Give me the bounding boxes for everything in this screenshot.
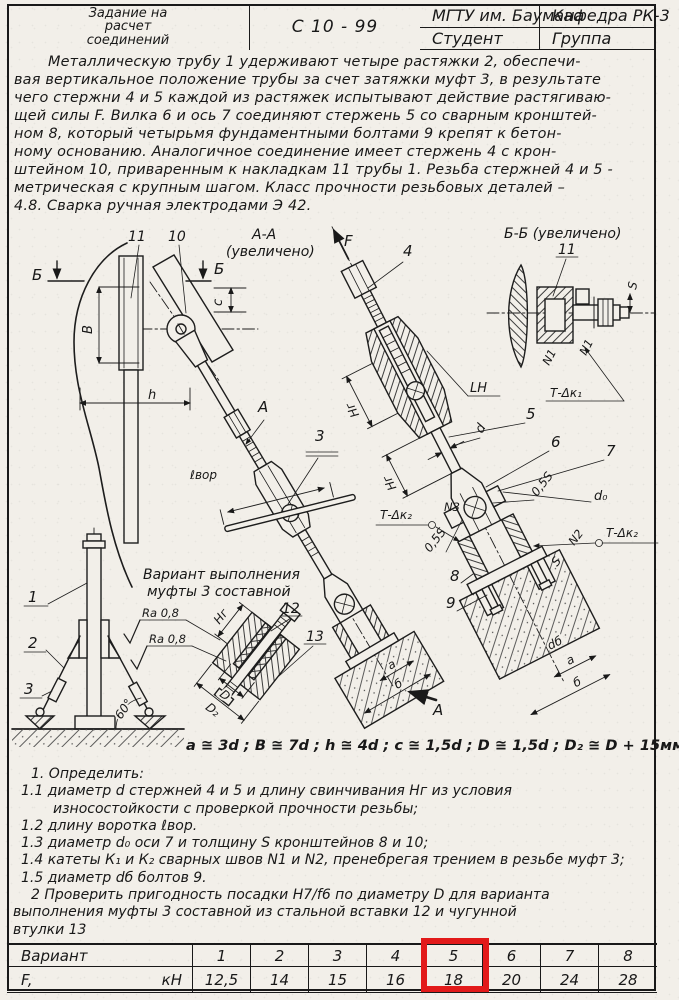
dim-label-05s-b: 0,5S (421, 525, 449, 555)
task-line: износостойкости с проверкой прочности ре… (13, 801, 655, 818)
part-label-3-coupling: 3 (315, 427, 325, 445)
dim-label-lvor: ℓвор (189, 468, 217, 482)
aa-title-line1: А-А (251, 227, 276, 243)
dept-name: Кафедра РК-3 (540, 4, 656, 28)
task-line: 1.3 диаметр d₀ оси 7 и толщину S кронште… (13, 835, 655, 852)
dim-label-d0: d₀ (594, 489, 608, 504)
title-block: МГТУ им. Баумана Кафедра РК-3 Задание на… (7, 4, 656, 50)
description-line: ному основанию. Аналогичное соединение и… (14, 143, 648, 161)
dim-label-Hg2: Нг (380, 472, 400, 493)
task-line: 1.4 катеты К₁ и К₂ сварных швов N1 и N2,… (13, 852, 655, 869)
variant-number: 8 (599, 945, 657, 967)
variant-number: 3 (309, 945, 367, 967)
variants-table: Вариант 1 2 3 4 5 6 7 8 F, кН 12,5 14 15… (7, 943, 657, 991)
task-list: 1. Определить: 1.1 диаметр d стержней 4 … (13, 766, 655, 939)
group-label: Группа (540, 28, 656, 50)
variant-note-line2: муфты 3 составной (147, 584, 291, 600)
part-label-8: 8 (450, 567, 460, 585)
dim-label-D2: D₂ (203, 700, 223, 720)
variant-number: 1 (193, 945, 251, 967)
weld-flag-tk1: Т-Δк₁ (550, 386, 582, 400)
roughness-label-bottom: Ra 0,8 (149, 632, 186, 646)
force-value: 24 (541, 967, 599, 993)
description-line: Металлическую трубу 1 удерживают четыре … (14, 53, 648, 71)
part-label-4: 4 (403, 242, 413, 260)
part-label-2: 2 (28, 634, 38, 652)
dim-label-d: d (472, 421, 489, 436)
sheet-code: С 10 - 99 (250, 4, 420, 50)
variant-note-line1: Вариант выполнения (143, 567, 300, 583)
description-line: вая вертикальное положение трубы за счет… (14, 71, 648, 89)
force-value: 15 (309, 967, 367, 993)
part-label-7: 7 (606, 442, 616, 460)
variant-number: 6 (483, 945, 541, 967)
assignment-title: Задание на расчет соединений (7, 4, 250, 50)
task-line: втулки 13 (13, 922, 655, 939)
task-line: 1.1 диаметр d стержней 4 и 5 и длину сви… (13, 783, 655, 800)
part-label-11: 11 (128, 229, 146, 245)
selected-variant-highlight (421, 938, 489, 992)
part-label-6: 6 (551, 433, 561, 451)
part-label-13: 13 (306, 629, 324, 645)
dim-label-c: c (211, 299, 226, 306)
roughness-label-top: Ra 0,8 (142, 606, 179, 620)
weld-label-n3: N3 (444, 500, 460, 514)
dim-label-05s-a: 0,5S (528, 469, 556, 499)
section-mark-a: А (432, 701, 443, 719)
task-line: 1.5 диаметр dб болтов 9. (13, 870, 655, 887)
variant-number: 4 (367, 945, 425, 967)
bb-view-title: Б-Б (увеличено) (504, 226, 621, 242)
task-line: выполнения муфты 3 составной из стальной… (13, 904, 655, 921)
proportions-formula: a ≅ 3d ; В ≅ 7d ; h ≅ 4d ; c ≅ 1,5d ; D … (186, 737, 656, 754)
dim-label-Hg1: Нг (342, 399, 362, 420)
description-line: щей силы F. Вилка 6 и ось 7 соединяют ст… (14, 107, 648, 125)
variant-number: 2 (251, 945, 309, 967)
description-line: чего стержни 4 и 5 каждой из растяжек ис… (14, 89, 648, 107)
task-line: 1. Определить: (13, 766, 655, 783)
roughness-icon (124, 620, 140, 643)
variant-row-label: Вариант (7, 945, 193, 967)
roughness-icon (131, 646, 147, 669)
dim-label-S-bb: S (625, 280, 640, 290)
part-label-3: 3 (24, 680, 34, 698)
bb-section-view: Б-Б (увеличено) 11 S N1 N1 Т-Δк₁ (487, 226, 654, 401)
variant-number: 7 (541, 945, 599, 967)
part-label-12: 12 (282, 601, 300, 617)
assignment-sheet: МГТУ им. Баумана Кафедра РК-3 Задание на… (0, 0, 679, 1000)
force-value: 28 (599, 967, 657, 993)
section-mark-b-left: Б (32, 266, 42, 284)
part-label-5: 5 (526, 405, 536, 423)
part-label-9: 9 (446, 594, 456, 612)
technical-drawing: 11 10 Б Б В h c (0, 215, 679, 747)
aa-view-title: А-А (увеличено) (226, 227, 315, 260)
assignment-title-line1: Задание на (89, 7, 168, 21)
section-mark-b-right: Б (214, 260, 224, 278)
weld-flag-tk2-left: Т-Δк₂ (380, 508, 412, 522)
force-row-label: F, кН (7, 967, 193, 993)
part-label-11-bb: 11 (558, 242, 576, 258)
part-label-10: 10 (168, 229, 186, 245)
dim-label-b-right: б (571, 674, 584, 690)
org-name: МГТУ им. Баумана (420, 4, 540, 28)
description-line: штейном 10, приваренным к накладкам 11 т… (14, 161, 648, 179)
dim-label-a-right: a (564, 652, 577, 668)
view-mark-a: А (257, 398, 268, 416)
thread-lh-label: LH (470, 381, 487, 396)
force-value: 16 (367, 967, 425, 993)
force-value: 12,5 (193, 967, 251, 993)
right-tie-assembly: Нг Нг a б dб F 4 LH (268, 215, 658, 727)
weld-label-n1a: N1 (539, 347, 559, 368)
force-value: 20 (483, 967, 541, 993)
assignment-title-line3: соединений (87, 34, 169, 48)
weld-flag-tk2-right: Т-Δк₂ (606, 526, 638, 540)
description-line: ном 8, который четырьмя фундаментными бо… (14, 125, 648, 143)
task-line: 1.2 длину воротка ℓвор. (13, 818, 655, 835)
part-label-1: 1 (28, 588, 38, 606)
force-label: F, (21, 971, 32, 989)
weld-label-n1b: N1 (576, 337, 596, 358)
dim-label-B: В (81, 325, 96, 334)
task-description: Металлическую трубу 1 удерживают четыре … (14, 53, 648, 215)
description-line: метрическая с крупным шагом. Класс прочн… (14, 179, 648, 197)
force-unit: кН (162, 971, 182, 989)
force-value: 14 (251, 967, 309, 993)
aa-title-line2: (увеличено) (226, 244, 315, 260)
assignment-title-line2: расчет (105, 20, 152, 34)
description-line: 4.8. Сварка ручная электродами Э 42. (14, 197, 648, 215)
task-line: 2 Проверить пригодность посадки Н7/f6 по… (13, 887, 655, 904)
dim-label-h: h (148, 388, 156, 403)
force-label: F (344, 232, 353, 250)
student-label: Студент (420, 28, 540, 50)
